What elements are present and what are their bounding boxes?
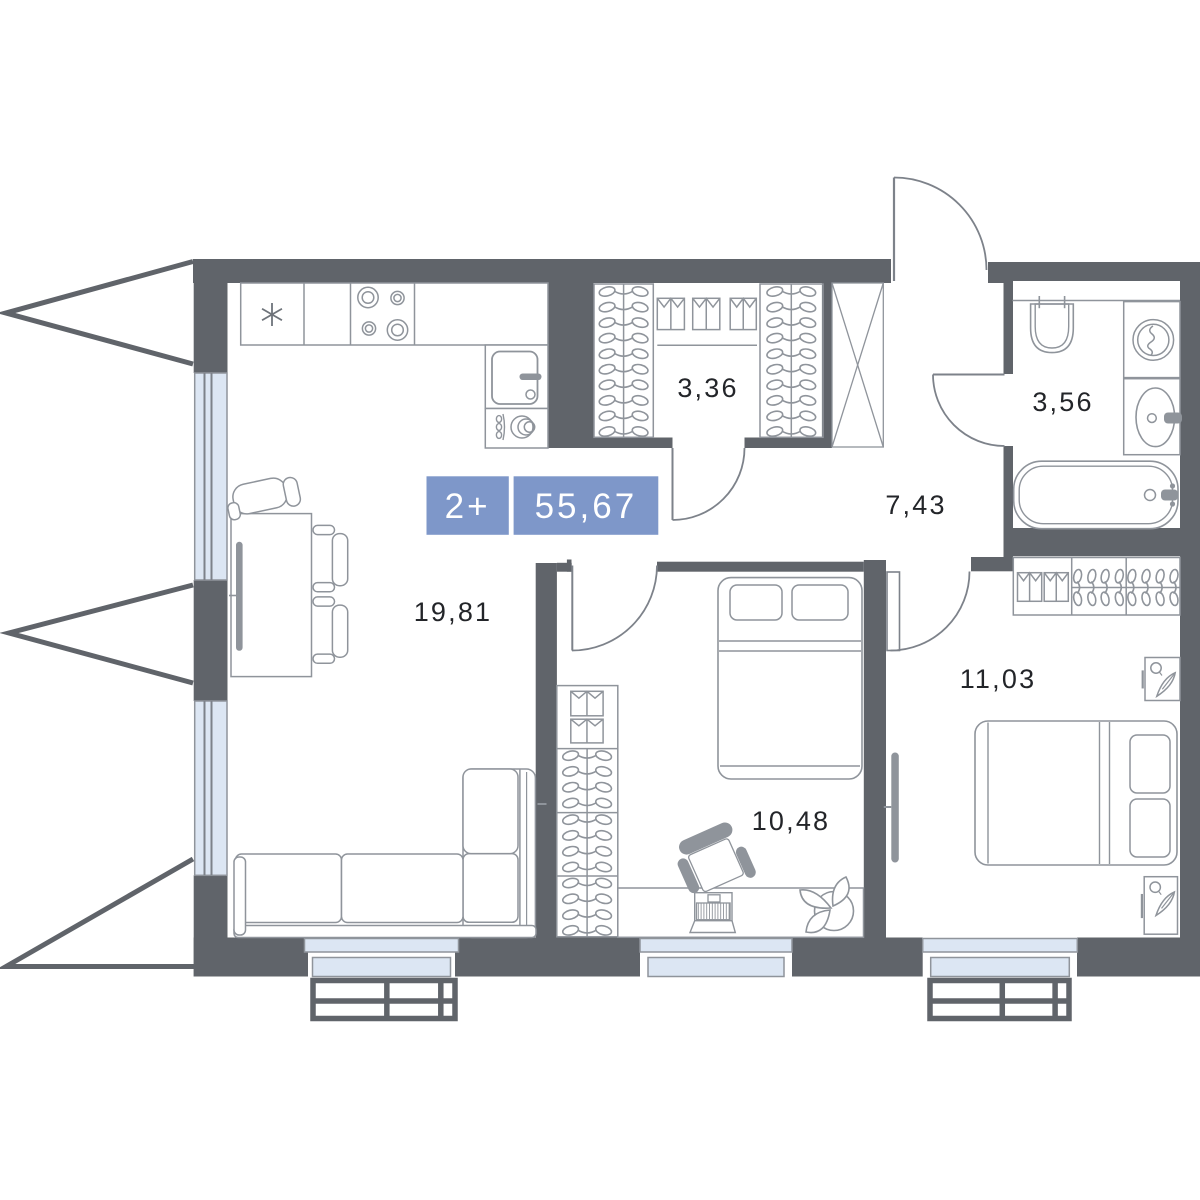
svg-text:2+: 2+ — [445, 487, 491, 526]
svg-text:7,43: 7,43 — [885, 490, 946, 520]
svg-text:3,56: 3,56 — [1032, 387, 1093, 417]
svg-text:11,03: 11,03 — [960, 664, 1037, 694]
svg-text:55,67: 55,67 — [535, 487, 638, 526]
svg-text:3,36: 3,36 — [677, 373, 738, 403]
svg-text:19,81: 19,81 — [414, 597, 493, 627]
svg-text:10,48: 10,48 — [752, 806, 831, 836]
